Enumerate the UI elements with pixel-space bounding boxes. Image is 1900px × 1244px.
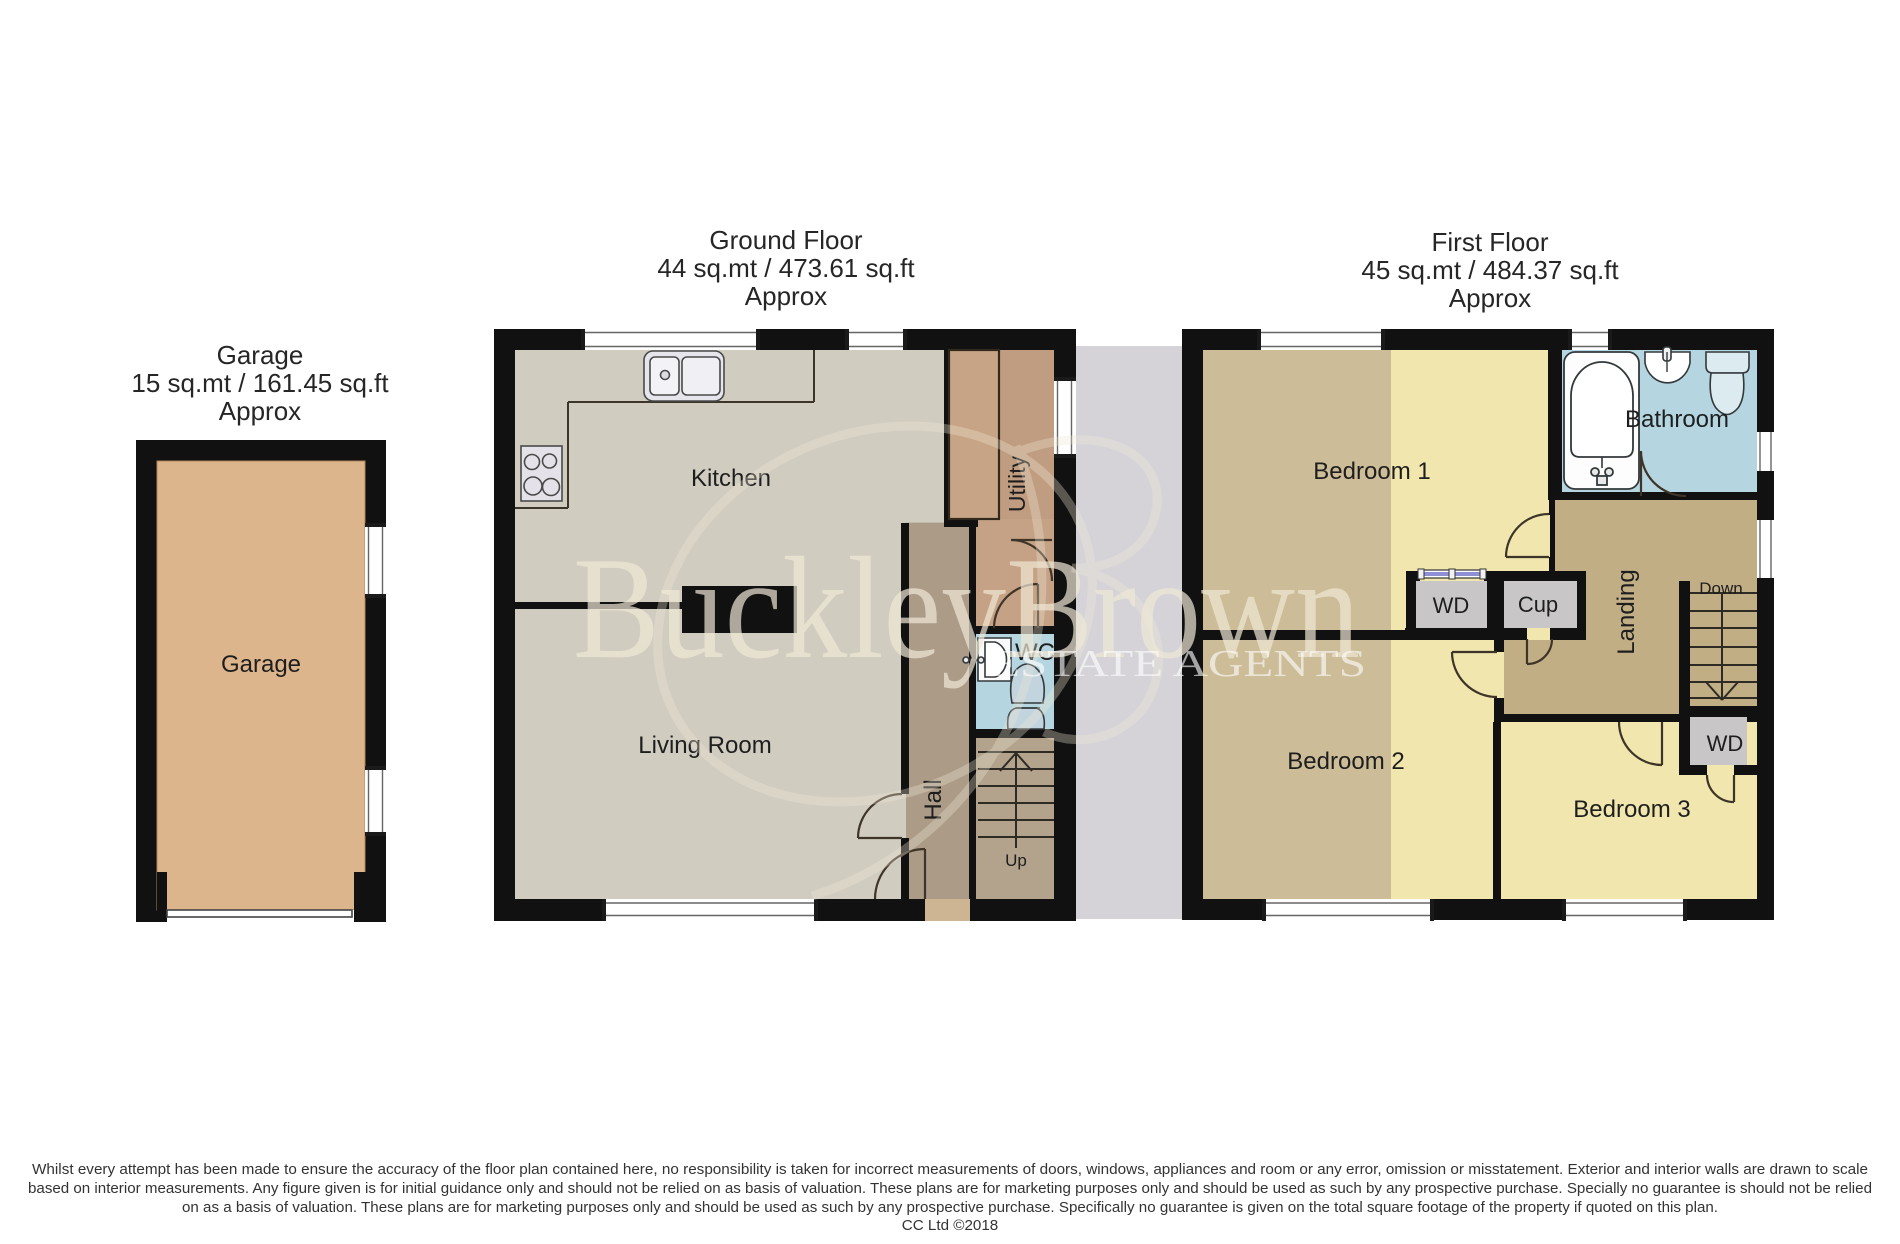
svg-text:Cup: Cup — [1518, 592, 1558, 617]
svg-text:on as a basis of valuation. Th: on as a basis of valuation. These plans … — [182, 1199, 1718, 1216]
svg-text:Bathroom: Bathroom — [1625, 406, 1729, 433]
svg-text:44 sq.mt / 473.61 sq.ft: 44 sq.mt / 473.61 sq.ft — [657, 253, 915, 283]
svg-text:Garage: Garage — [217, 340, 304, 370]
svg-text:Bedroom 3: Bedroom 3 — [1573, 796, 1690, 823]
svg-text:15 sq.mt / 161.45 sq.ft: 15 sq.mt / 161.45 sq.ft — [131, 368, 389, 398]
svg-text:45 sq.mt / 484.37 sq.ft: 45 sq.mt / 484.37 sq.ft — [1361, 255, 1619, 285]
svg-text:based on interior measurements: based on interior measurements. Any figu… — [28, 1180, 1872, 1197]
svg-text:Garage: Garage — [221, 651, 301, 678]
svg-text:Up: Up — [1005, 851, 1027, 870]
svg-text:CC Ltd ©2018: CC Ltd ©2018 — [902, 1217, 998, 1234]
svg-text:Landing: Landing — [1613, 569, 1640, 654]
svg-text:Down: Down — [1699, 579, 1742, 598]
svg-text:Bedroom 2: Bedroom 2 — [1287, 748, 1404, 775]
svg-text:Approx: Approx — [219, 396, 301, 426]
svg-text:Ground Floor: Ground Floor — [709, 225, 863, 255]
svg-text:First Floor: First Floor — [1432, 227, 1549, 257]
svg-text:ESTATE AGENTS: ESTATE AGENTS — [990, 643, 1366, 685]
svg-text:Whilst every attempt has been: Whilst every attempt has been made to en… — [32, 1161, 1868, 1178]
svg-text:WD: WD — [1707, 731, 1744, 756]
svg-text:Approx: Approx — [745, 281, 827, 311]
svg-text:Bedroom 1: Bedroom 1 — [1313, 458, 1430, 485]
svg-text:Approx: Approx — [1449, 283, 1531, 313]
svg-text:WD: WD — [1433, 593, 1470, 618]
